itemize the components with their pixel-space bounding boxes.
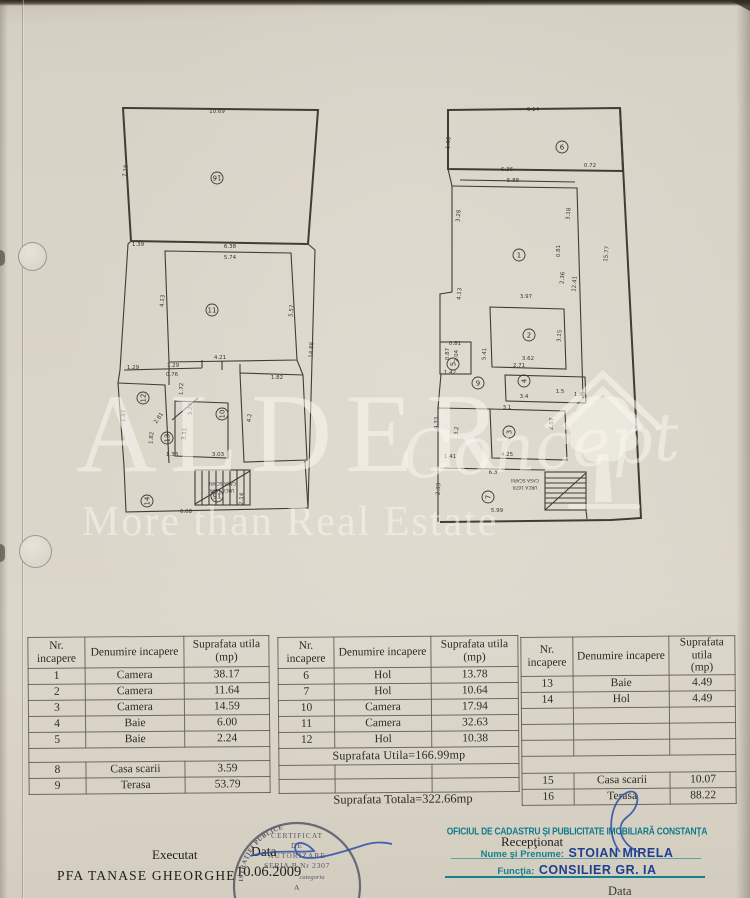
dimension-label: 3.28 (455, 209, 462, 222)
room-number-9: 9 (472, 377, 484, 389)
dimension-label: 4.21 (214, 355, 226, 361)
dimension-label: 0.87 (445, 347, 451, 360)
punch-hole-edge-mark (0, 250, 5, 266)
svg-text:4: 4 (520, 378, 528, 383)
table-cell: 11.64 (184, 682, 269, 699)
dimension-label: 1.42 (444, 370, 456, 376)
table-cell: Hol (335, 731, 432, 748)
table-cell: Hol (334, 667, 431, 684)
table-cell: Hol (334, 683, 431, 700)
table-cell (432, 763, 519, 778)
table-cell: 10 (278, 700, 334, 716)
dimension-label: 2.71 (513, 363, 525, 369)
dimension-label: 6.3 (489, 470, 498, 476)
table-cell: Baie (573, 675, 669, 692)
table-cell: 88.22 (670, 787, 736, 804)
scanned-cadastral-document: 10.697.181.3914.886.385.744.135.574.211.… (0, 0, 750, 898)
floorplan-parter: 9.141.666.365.880.723.283.180.812.3612.4… (430, 98, 645, 528)
dimension-label: 1.29 (167, 363, 180, 369)
table-row: Suprafata Utila=166.99mp (279, 746, 519, 765)
room-number-1: 1 (513, 249, 525, 261)
table-cell: 13.78 (431, 666, 518, 683)
dimension-label: 1.29 (127, 365, 140, 371)
reception-stamp: OFICIUL DE CADASTRU ŞI PUBLICITATE IMOBI… (443, 822, 711, 898)
table-cell (521, 708, 573, 724)
functie-value: CONSILIER GR. IA (539, 863, 657, 877)
dimension-label: 1.97 (120, 409, 127, 422)
table-cell (669, 706, 735, 723)
areas-table-1: Nr.incapereDenumire incapereSuprafata ut… (27, 635, 270, 795)
column-header: Suprafata utila(mp) (184, 635, 269, 667)
table-cell: 4.49 (669, 674, 735, 691)
dimension-label: 3.15 (556, 329, 563, 342)
table-cell (279, 765, 335, 779)
floorplan-etaj: 10.697.181.3914.886.385.744.135.574.211.… (112, 98, 327, 523)
dimension-label: 2.57 (548, 417, 555, 430)
column-header: Suprafata utila(mp) (431, 635, 518, 667)
room-number-14: 14 (141, 495, 153, 507)
dimension-label: 14.88 (308, 341, 315, 358)
room-number-15: 15 (211, 490, 223, 502)
dimension-label: 9.14 (527, 107, 540, 113)
dimension-label: 0.81 (449, 341, 461, 347)
stairs-annotation: CASA SCARII (511, 477, 539, 483)
dimension-label: 1.41 (444, 454, 456, 460)
table-cell: 12 (279, 732, 335, 748)
punch-hole-bottom (19, 535, 52, 568)
dimension-label: 2.81 (153, 412, 165, 425)
column-header: Denumire incapere (573, 636, 669, 676)
column-header: Suprafata utila(mp) (669, 636, 735, 675)
areas-table-2: Nr.incapereDenumire incapereSuprafata ut… (277, 635, 519, 794)
signature-ink-right (596, 786, 658, 858)
room-number-12: 12 (137, 392, 149, 404)
table-cell: 3 (28, 700, 85, 716)
table-cell: Camera (85, 683, 184, 700)
room-number-5: 5 (447, 358, 459, 370)
table-cell: Terasa (86, 777, 185, 794)
dimension-label: 3.11 (181, 428, 188, 441)
table-cell: Hol (573, 691, 669, 708)
table-cell: Baie (86, 715, 185, 732)
svg-text:13: 13 (163, 434, 171, 443)
column-header: Nr.incapere (521, 637, 573, 676)
table-cell: 15 (522, 773, 574, 789)
table-cell: 38.17 (184, 666, 269, 683)
table-cell: 4 (29, 716, 86, 732)
table-cell: 10.64 (431, 682, 518, 699)
paper-top-edge (0, 0, 750, 6)
table-cell (522, 724, 574, 740)
dimension-label: 4.33 (434, 416, 441, 429)
table-cell: 4.49 (669, 690, 735, 707)
table-cell: 7 (278, 684, 334, 700)
stairs-annotation: CASA SCARII (208, 480, 236, 486)
table-cell: 11 (279, 716, 335, 732)
table-cell: 8 (29, 762, 86, 778)
stamp-underline (451, 858, 701, 859)
paper-fold-line (22, 0, 23, 898)
table-cell: 2 (28, 684, 85, 700)
room-number-10: 10 (216, 408, 228, 420)
dimension-label: 1.82 (271, 375, 283, 381)
svg-text:10: 10 (218, 410, 226, 419)
svg-text:14: 14 (143, 496, 151, 505)
dimension-label: 1.33 (166, 452, 179, 458)
column-header: Denumire incapere (334, 636, 431, 668)
signature-ink-left (246, 832, 396, 868)
svg-text:3: 3 (505, 430, 513, 434)
table-cell: Camera (334, 699, 431, 716)
table-cell (279, 779, 335, 793)
table-cell: 10.07 (670, 771, 736, 788)
table-row: 9Terasa53.79 (29, 776, 270, 794)
svg-text:15: 15 (213, 492, 222, 500)
table-cell: 1 (28, 668, 85, 684)
svg-text:categoria: categoria (300, 874, 325, 881)
dimension-label: 2.36 (559, 271, 566, 284)
dimension-label: 3.4 (520, 394, 529, 400)
executat-name: PFA TANASE GHEORGHE (57, 868, 236, 884)
table-cell (335, 778, 432, 793)
dimension-label: 4.2 (247, 413, 254, 422)
table-cell: Casa scarii (86, 761, 185, 778)
dimension-label: 12.41 (571, 276, 578, 292)
table-cell: 14 (521, 692, 573, 708)
dimension-label: 2.04 (454, 349, 460, 362)
dimension-label: 6.36 (501, 167, 514, 173)
paper-right-shadow (736, 0, 750, 898)
stairs-annotation: URCA 16TR (513, 484, 538, 490)
table-cell (670, 738, 736, 755)
table-cell: 10.38 (432, 730, 519, 747)
dimension-label: 5.74 (224, 255, 237, 261)
table-row: 14Hol4.49 (521, 690, 735, 708)
table-cell: Camera (85, 667, 184, 684)
dimension-label: 6.38 (224, 244, 237, 250)
dimension-label: 1.5 (556, 389, 565, 395)
svg-text:16: 16 (212, 174, 221, 182)
svg-text:11: 11 (208, 306, 217, 314)
dimension-label: 10.69 (209, 109, 225, 115)
dimension-label: 0.76 (166, 372, 179, 378)
room-number-11: 11 (206, 304, 218, 316)
table-cell: 3.59 (185, 760, 270, 777)
dimension-label: 3.18 (565, 207, 572, 220)
table-cell: 17.94 (431, 698, 518, 715)
dimension-label: 1.39 (132, 242, 145, 248)
table-cell (670, 722, 736, 739)
table-row: . (522, 754, 736, 773)
punch-hole-top (18, 242, 47, 271)
stamp-underline-heavy (445, 876, 705, 878)
room-number-4: 4 (518, 375, 530, 387)
table-cell: 13 (521, 676, 573, 692)
dimension-label: 4.13 (456, 287, 463, 300)
office-name: OFICIUL DE CADASTRU ŞI PUBLICITATE IMOBI… (446, 825, 709, 837)
table-cell: 16 (522, 789, 574, 805)
table-cell (574, 739, 670, 756)
dimension-label: 15.77 (603, 245, 611, 262)
table-cell: 9 (29, 778, 86, 794)
dimension-label: 5.41 (482, 348, 489, 361)
table-cell: 6 (278, 668, 334, 684)
room-number-2: 2 (523, 329, 535, 341)
room-number-16: 16 (211, 172, 223, 184)
dimension-label: 2.33 (436, 482, 443, 495)
table-cell: 5 (29, 732, 86, 748)
executat-label: Executat (152, 847, 197, 863)
svg-text:1: 1 (517, 251, 521, 259)
dimension-label: 0.81 (556, 245, 562, 257)
table-row (521, 706, 735, 724)
table-cell: 6.00 (185, 714, 270, 731)
punch-hole-edge-mark (0, 544, 5, 562)
svg-text:6: 6 (560, 143, 565, 151)
column-header: Nr.incapere (278, 637, 334, 668)
table-cell (574, 723, 670, 740)
table-row (522, 722, 736, 740)
table-cell (335, 764, 432, 779)
dimension-label: 5.88 (507, 178, 520, 184)
dimension-label: 1.72 (179, 383, 186, 396)
table-cell: 53.79 (185, 776, 270, 793)
dimension-label: 3.1 (503, 405, 512, 411)
dimension-label: 4.25 (501, 452, 514, 458)
dimension-label: 1.87 (574, 392, 587, 398)
dimension-label: 3.2 (454, 426, 461, 435)
room-number-13: 13 (161, 432, 173, 444)
table-cell (573, 707, 669, 724)
svg-text:5: 5 (449, 362, 457, 366)
dimension-label: 3.03 (212, 452, 225, 458)
svg-text:2: 2 (527, 331, 531, 339)
paper-left-shadow (0, 0, 8, 898)
room-number-3: 3 (503, 426, 515, 438)
svg-text:7: 7 (484, 495, 492, 499)
table-cell: Baie (86, 731, 185, 748)
dimension-label: 7.18 (122, 164, 130, 177)
subtotal-text: Suprafata Utila=166.99mp (279, 746, 519, 765)
dimension-label: 5.24 (188, 402, 195, 415)
dimension-label: 4.13 (159, 294, 166, 307)
dimension-label: 3.97 (520, 294, 533, 300)
svg-text:A: A (294, 883, 300, 892)
dimension-label: 3.62 (522, 356, 534, 362)
dimension-label: 2.14 (239, 492, 246, 505)
paper-corner-fold (730, 0, 750, 11)
dimension-label: 6.08 (180, 509, 193, 515)
svg-text:12: 12 (139, 394, 147, 403)
table-row (522, 738, 736, 756)
table-cell: 32.63 (432, 714, 519, 731)
column-header: Nr.incapere (28, 637, 85, 668)
column-header: Denumire incapere (85, 636, 184, 668)
room-number-7: 7 (482, 491, 494, 503)
table-cell: 2.24 (185, 730, 270, 747)
table-row: 13Baie4.49 (521, 674, 735, 692)
table-cell: Camera (335, 715, 432, 732)
dimension-label: 0.72 (584, 163, 596, 169)
table-cell: Camera (85, 699, 184, 716)
room-number-6: 6 (556, 141, 568, 153)
dimension-label: 1.66 (445, 136, 452, 149)
areas-table-3: Nr.incapereDenumire incapereSuprafata ut… (520, 635, 736, 806)
svg-text:9: 9 (476, 379, 480, 387)
table-cell (522, 740, 574, 756)
table-cell: 14.59 (184, 698, 269, 715)
dimension-label: 5.99 (491, 508, 504, 514)
dimension-label: 1.82 (148, 432, 155, 445)
